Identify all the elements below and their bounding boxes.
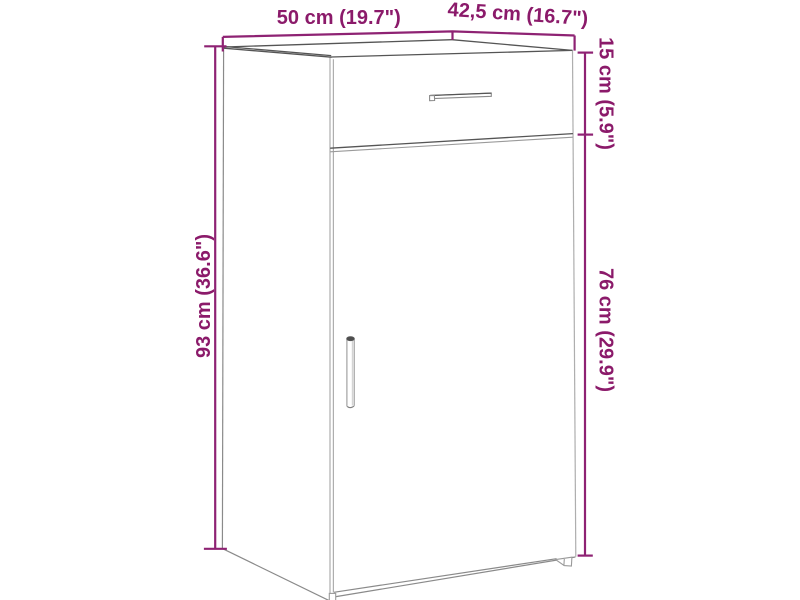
svg-text:93 cm (36.6"): 93 cm (36.6") xyxy=(193,234,215,358)
svg-text:76 cm (29.9"): 76 cm (29.9") xyxy=(595,268,617,392)
svg-text:50 cm (19.7"): 50 cm (19.7") xyxy=(277,7,401,29)
svg-text:15 cm (5.9"): 15 cm (5.9") xyxy=(595,37,617,150)
